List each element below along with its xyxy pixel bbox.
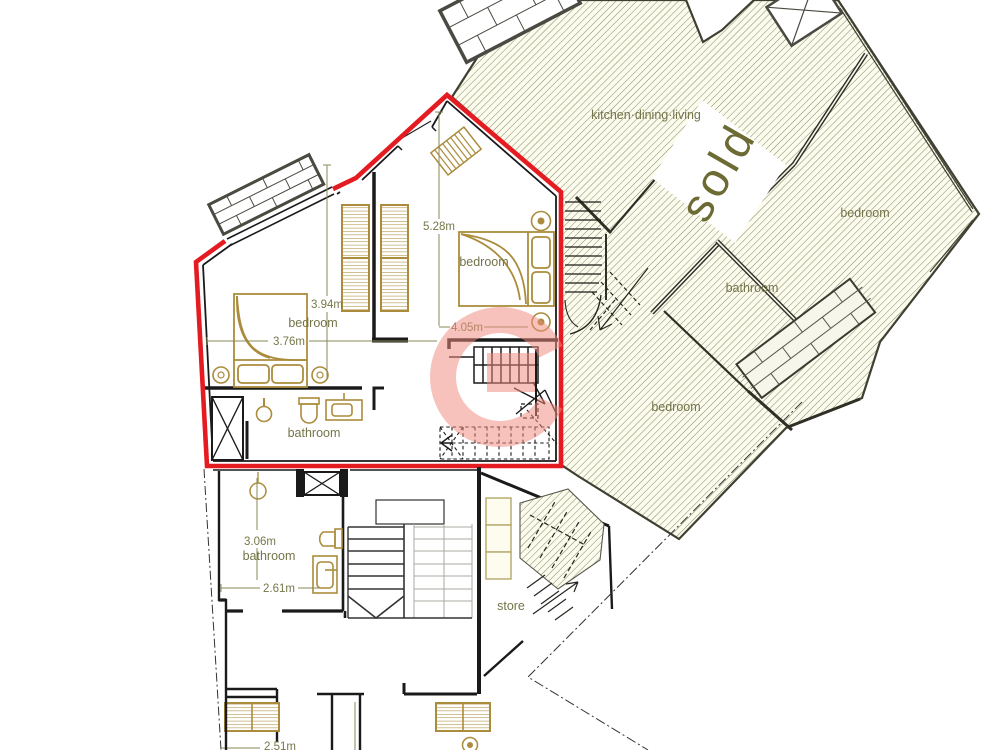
svg-text:2.51m: 2.51m bbox=[264, 741, 296, 750]
svg-text:store: store bbox=[497, 599, 525, 613]
svg-text:bedroom: bedroom bbox=[459, 255, 508, 269]
svg-text:bathroom: bathroom bbox=[288, 426, 341, 440]
svg-text:bathroom: bathroom bbox=[726, 281, 779, 295]
svg-text:bedroom: bedroom bbox=[840, 206, 889, 220]
svg-text:bedroom: bedroom bbox=[651, 400, 700, 414]
svg-text:3.06m: 3.06m bbox=[244, 536, 276, 548]
svg-text:bathroom: bathroom bbox=[243, 549, 296, 563]
svg-text:5.28m: 5.28m bbox=[423, 221, 455, 233]
svg-text:bedroom: bedroom bbox=[288, 316, 337, 330]
svg-text:3.76m: 3.76m bbox=[273, 336, 305, 348]
svg-text:3.94m: 3.94m bbox=[311, 299, 343, 311]
svg-text:2.61m: 2.61m bbox=[263, 583, 295, 595]
svg-text:kitchen·dining·living: kitchen·dining·living bbox=[591, 108, 701, 122]
